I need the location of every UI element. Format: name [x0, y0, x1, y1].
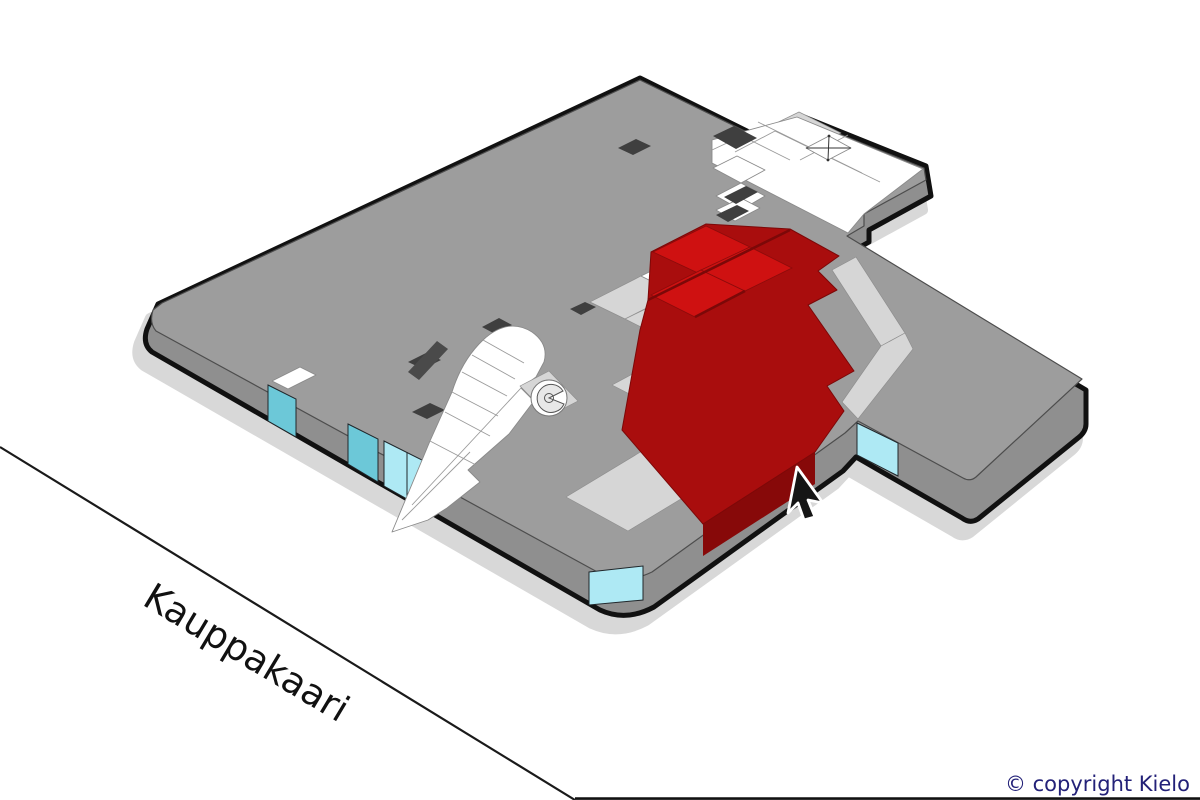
- copyright-text: © copyright Kielo: [1005, 772, 1190, 796]
- floorplan-canvas: Kauppakaari © copyright Kielo: [0, 0, 1200, 800]
- building-structure: [145, 78, 1086, 615]
- window: [589, 566, 643, 605]
- floorplan-svg: Kauppakaari © copyright Kielo: [0, 0, 1200, 800]
